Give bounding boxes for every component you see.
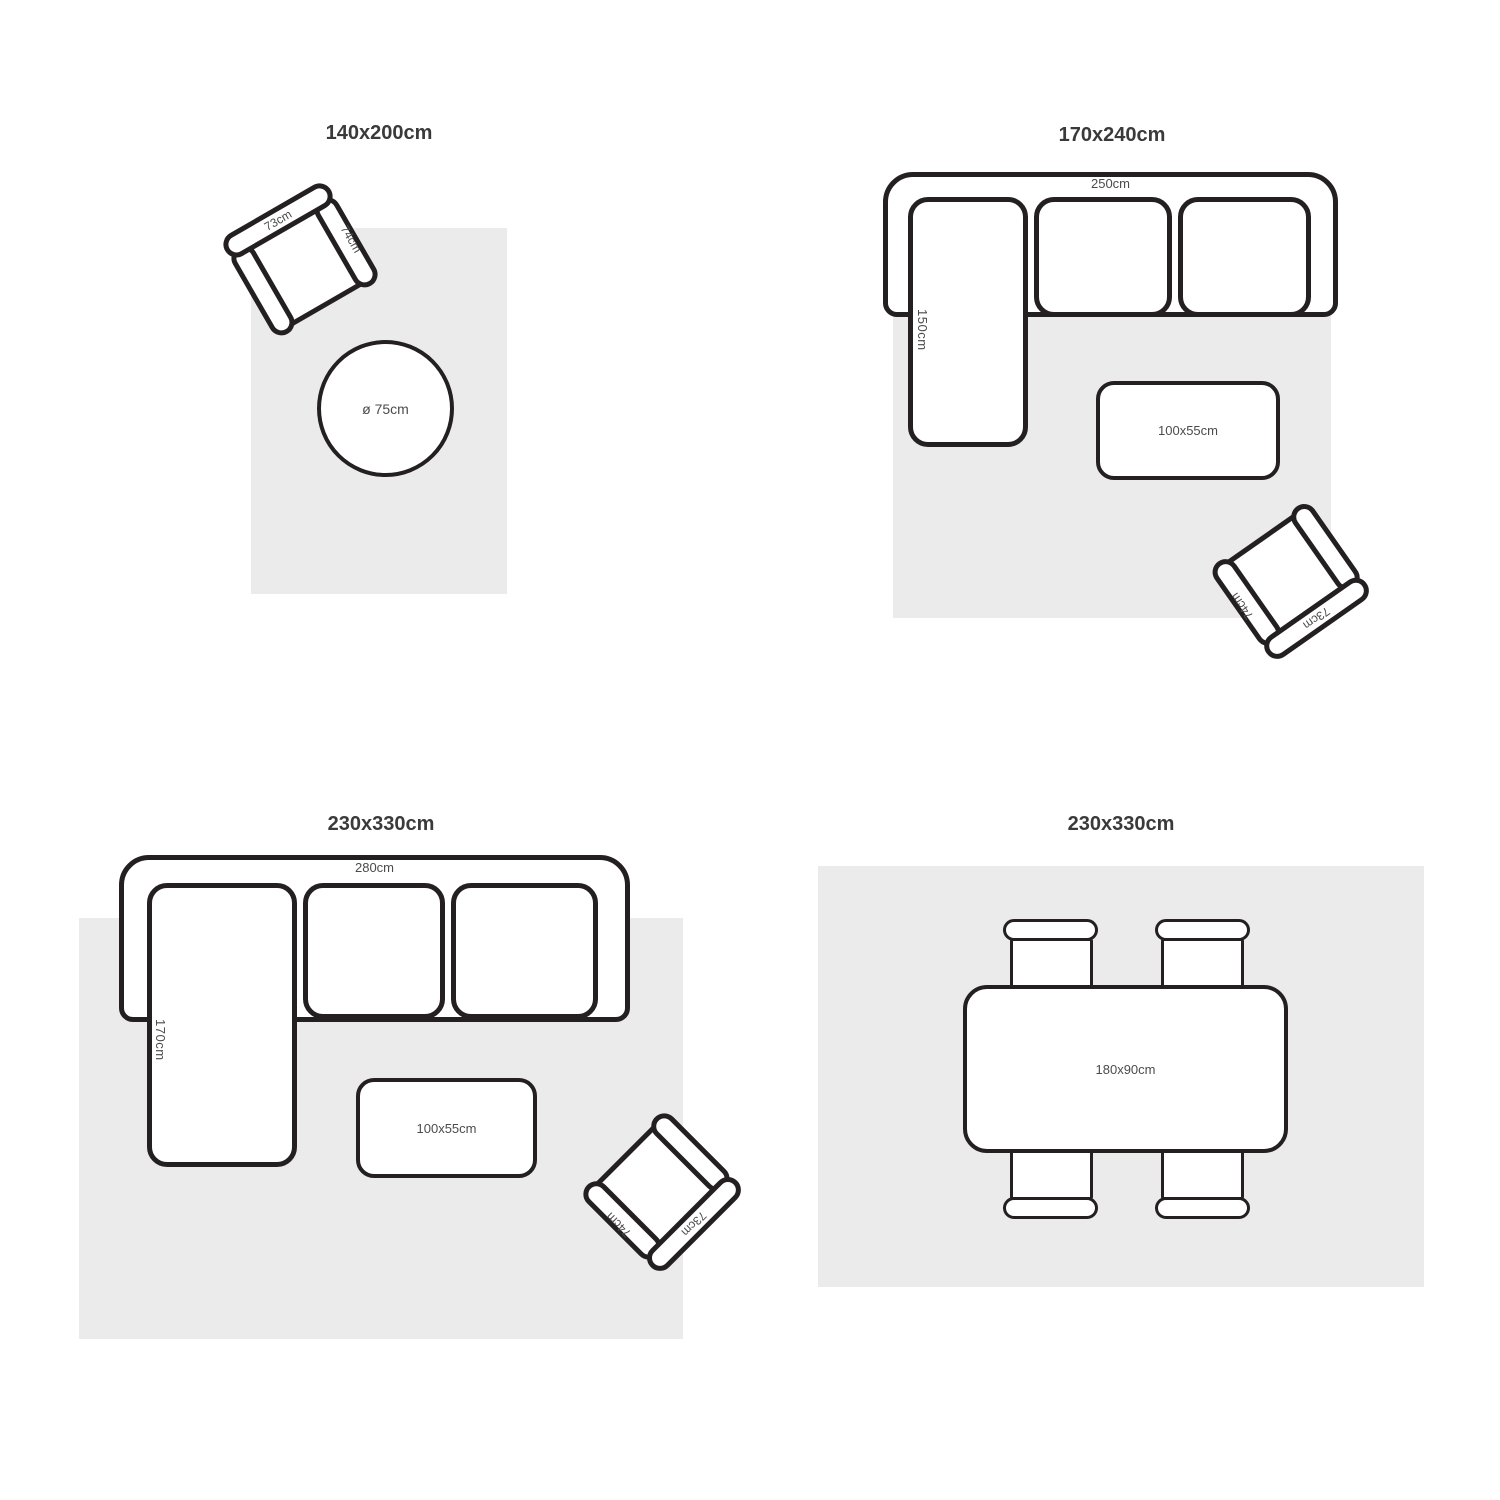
sofa-chaise-label: 150cm [915,230,930,430]
armchair-arm-label: 74cm [578,1176,667,1265]
armchair: 73cm 74cm [1204,494,1374,664]
panel-170x240: 170x240cm 250cm 150cm 100x55cm 73cm 74cm [0,0,1500,1500]
sofa-frame [883,172,1338,317]
rug [251,228,507,594]
round-table: ø 75cm [317,340,454,477]
sofa-cushion [1178,197,1311,317]
armchair-right-arm [578,1176,667,1265]
armchair-seat [1216,507,1359,648]
dining-table-label: 180x90cm [1096,1062,1156,1077]
dining-chair-back [1003,1197,1098,1219]
dining-chair-seat [1010,938,1093,988]
dining-chair-seat [1010,1150,1093,1200]
armchair-back: 73cm [1259,573,1374,664]
sofa-cushion [303,883,445,1019]
round-table-label: ø 75cm [362,401,409,417]
armchair-left-arm [646,1108,735,1197]
sofa-chaise [147,883,297,1167]
sofa-frame [119,855,630,1022]
panel-title: 140x200cm [251,121,507,145]
armchair-seat [233,195,374,333]
panel-title: 170x240cm [893,123,1331,147]
sofa-width-label: 280cm [119,860,630,876]
armchair-back-label: 73cm [262,207,294,234]
armchair-back-label: 73cm [1300,604,1332,632]
sofa-chaise [908,197,1028,447]
coffee-table: 100x55cm [1096,381,1280,480]
rug-size-guide: 140x200cm ø 75cm 73cm 74cm 170x240cm 250… [0,0,1500,1500]
coffee-table-label: 100x55cm [417,1121,477,1136]
panel-230x330-dining: 230x330cm 180x90cm [0,0,1500,1500]
dining-chair-back [1155,919,1250,941]
dining-chair-back [1155,1197,1250,1219]
armchair: 73cm 74cm [219,179,386,346]
sofa-chaise-label: 170cm [153,940,168,1140]
armchair-left-arm [227,241,300,341]
dining-chair-seat [1161,938,1244,988]
armchair: 73cm 74cm [574,1104,747,1277]
coffee-table: 100x55cm [356,1078,537,1178]
panel-140x200: 140x200cm ø 75cm 73cm 74cm [0,0,1500,1500]
sofa-cushion [1034,197,1172,317]
rug [79,918,683,1339]
rug [818,866,1424,1287]
dining-chair-seat [1161,1150,1244,1200]
sofa-cushion [451,883,598,1019]
armchair-left-arm [1286,499,1365,596]
armchair-right-arm [1207,554,1286,651]
armchair-arm-label: 74cm [310,193,383,293]
rug [893,308,1331,618]
armchair-back: 73cm [219,179,338,263]
coffee-table-label: 100x55cm [1158,423,1218,438]
armchair-arm-label: 74cm [1207,554,1286,651]
armchair-right-arm [310,193,383,293]
dining-table: 180x90cm [963,985,1288,1153]
panel-title: 230x330cm [79,812,683,836]
panel-title: 230x330cm [818,812,1424,836]
panel-230x330-sofa: 230x330cm 280cm 170cm 100x55cm 73cm 74cm [0,0,1500,1500]
armchair-back: 73cm [642,1172,747,1277]
armchair-seat [586,1116,730,1260]
sofa-width-label: 250cm [883,176,1338,192]
dining-chair-back [1003,919,1098,941]
armchair-back-label: 73cm [679,1209,710,1240]
